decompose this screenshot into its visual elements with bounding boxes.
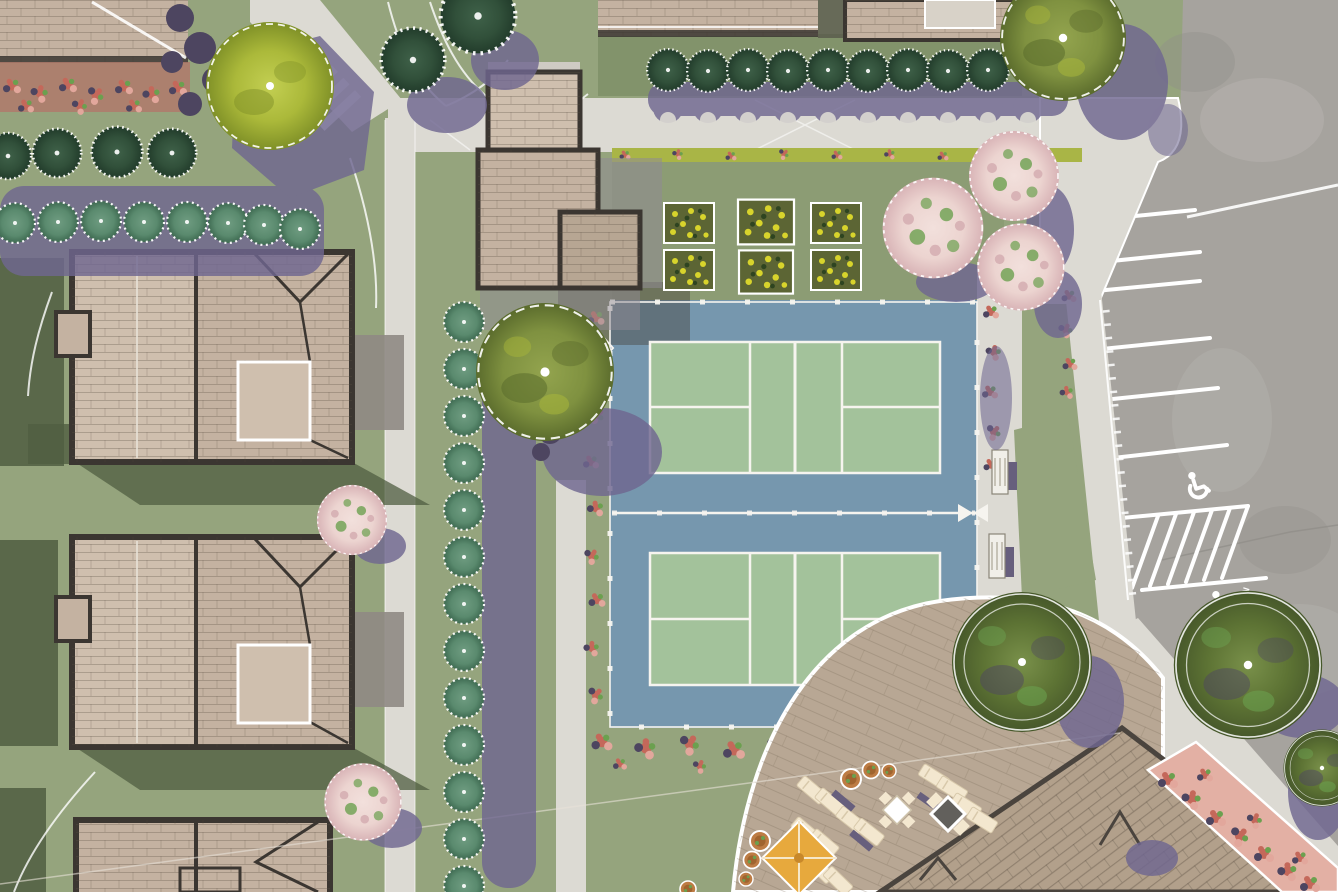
- olive-tree-center: [476, 303, 614, 441]
- building-roof-northwest: [0, 0, 188, 63]
- forest-tree-southeast-1: [952, 592, 1092, 732]
- flowering-tree-east-1: [883, 178, 984, 279]
- site-plan-rendering: VAN: [0, 0, 1338, 892]
- site-plan-canvas: VAN: [0, 0, 1338, 892]
- driveway-pad-2: [352, 612, 404, 707]
- rooftop-courtyard: [925, 0, 995, 28]
- townhome-roof-2: [56, 537, 352, 747]
- townhome-roof-1: [56, 252, 352, 462]
- northwest-block: [0, 0, 190, 116]
- flowering-tree-east-2: [969, 131, 1059, 221]
- flowering-tree-west-2: [324, 763, 401, 840]
- lime-tree: [206, 22, 334, 150]
- north-buildings: [598, 0, 1017, 40]
- flowering-tree-east-3: [977, 223, 1064, 310]
- driveway-pad-1: [352, 335, 404, 430]
- flowering-tree-west-1: [317, 485, 387, 555]
- forest-tree-southeast-2: [1174, 591, 1322, 739]
- pickleball-court-1: [650, 342, 940, 473]
- building-roof-north-2: [845, 0, 1017, 40]
- building-roof-north-1: [598, 0, 818, 37]
- roof-patio-inset: [238, 362, 310, 440]
- court-west-walkway: [556, 480, 586, 892]
